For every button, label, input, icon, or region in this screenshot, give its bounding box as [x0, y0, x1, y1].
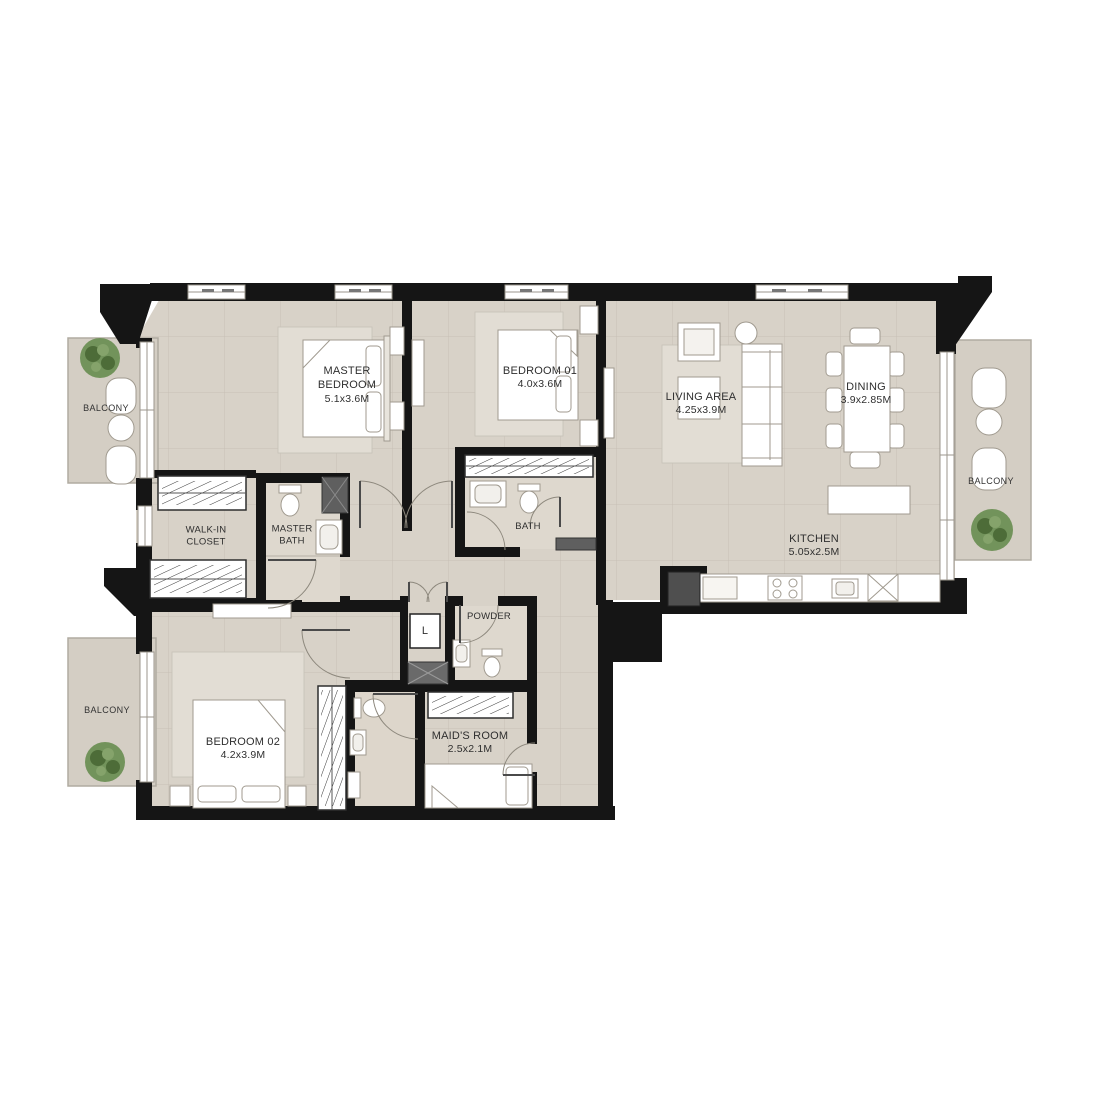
toilet [482, 649, 502, 677]
nightstand [580, 420, 598, 446]
balcony-chair [106, 378, 136, 414]
walkin-closet-bottom [150, 560, 246, 598]
floor-plan-page: MASTER BEDROOM 5.1x3.6M BEDROOM 01 4.0x3… [0, 0, 1100, 1100]
maid-bath-divider [415, 692, 425, 812]
sink [453, 640, 470, 667]
stove [768, 576, 802, 600]
sofa [742, 344, 782, 466]
bedroom01-closet [465, 455, 593, 477]
sink [316, 520, 342, 554]
floor-plan-graphic [0, 0, 1100, 1100]
dresser [213, 604, 291, 618]
plant [80, 338, 120, 378]
shower [556, 538, 596, 550]
living-west-wall [596, 301, 606, 605]
balcony-top-left-furniture [106, 378, 136, 484]
toilet [279, 485, 301, 516]
balcony-door-bottom-left [140, 652, 154, 782]
maid-bed [425, 764, 532, 808]
balcony-chair [106, 446, 136, 484]
plant [85, 742, 125, 782]
toilet [354, 698, 385, 718]
balcony-chair [972, 368, 1006, 408]
window-walkin-closet [138, 506, 152, 546]
bedroom01-wardrobe-unit [412, 340, 424, 406]
window-bedroom01 [505, 285, 568, 299]
entry-corner-block [598, 602, 662, 662]
window-master-2 [335, 285, 392, 299]
left-wall-mid [136, 478, 152, 510]
sink [470, 481, 506, 507]
shower-fitting [348, 772, 360, 798]
sink [350, 730, 366, 755]
dishwasher [868, 574, 898, 601]
nightstand [390, 327, 404, 355]
nightstand [580, 306, 598, 334]
media-unit [604, 368, 614, 438]
maid-closet [428, 692, 513, 718]
window-master-1 [188, 285, 245, 299]
bedroom02-wardrobe [318, 686, 346, 810]
balcony-table [976, 409, 1002, 435]
dining-table [844, 346, 890, 452]
coffee-table [678, 377, 720, 419]
entry-door-panel [668, 572, 700, 606]
nightstand [288, 786, 306, 806]
balcony-table [108, 415, 134, 441]
kitchen-island [828, 486, 910, 514]
balcony-door-right [940, 352, 954, 580]
powder-east-wall [527, 596, 537, 692]
kitchen-sink [832, 579, 858, 598]
balcony-door-top-left [140, 342, 154, 478]
nightstand [390, 402, 404, 430]
balcony-chair [972, 448, 1006, 490]
walkin-closet-top [158, 476, 246, 510]
master-bed [303, 327, 404, 441]
side-table [735, 322, 757, 344]
nightstand [170, 786, 190, 806]
laundry-box [410, 614, 440, 648]
window-living-dining [756, 285, 848, 299]
plant [971, 509, 1013, 551]
